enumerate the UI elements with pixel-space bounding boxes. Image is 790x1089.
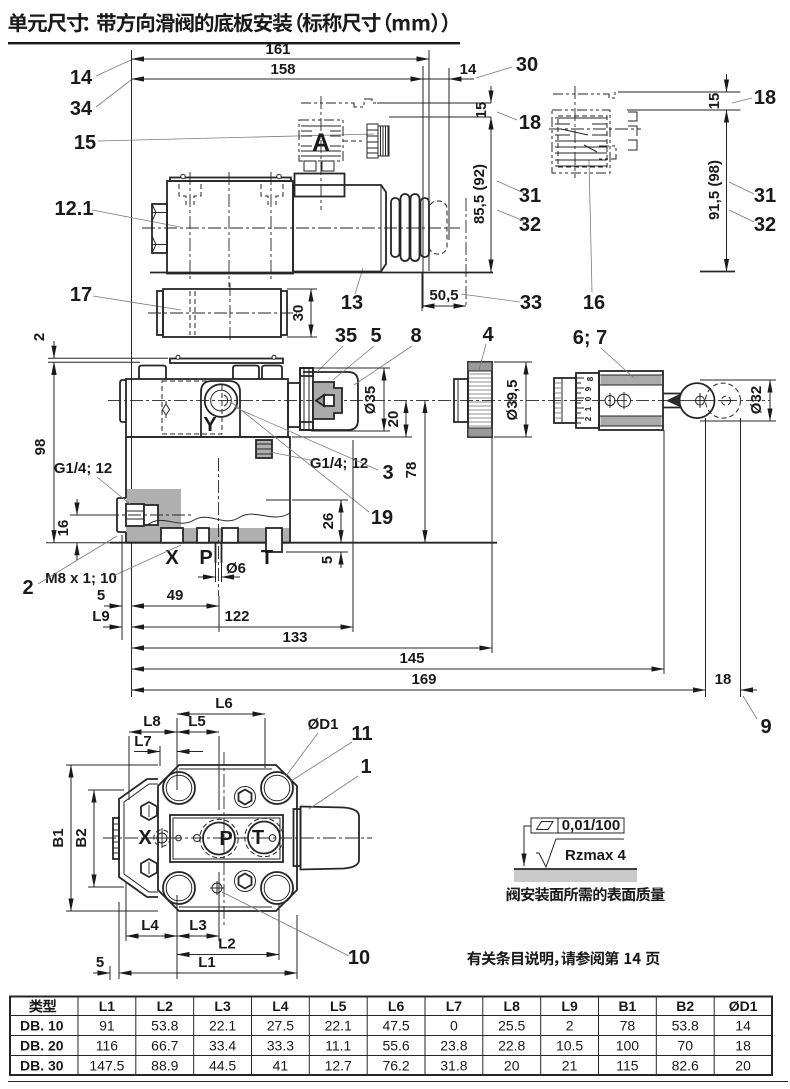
- svg-text:L8: L8: [504, 998, 521, 1014]
- svg-text:145: 145: [399, 650, 424, 667]
- svg-text:M8 x 1; 10: M8 x 1; 10: [45, 570, 117, 587]
- svg-text:18: 18: [519, 112, 541, 134]
- svg-text:L2: L2: [218, 936, 236, 953]
- svg-text:91,5 (98): 91,5 (98): [706, 160, 723, 220]
- svg-text:26: 26: [320, 513, 337, 530]
- svg-text:16: 16: [583, 292, 605, 314]
- svg-text:ØD1: ØD1: [308, 716, 339, 733]
- svg-text:10.5: 10.5: [556, 1038, 583, 1054]
- svg-text:18: 18: [735, 1038, 751, 1054]
- svg-text:31: 31: [519, 185, 541, 207]
- svg-text:11: 11: [351, 723, 372, 745]
- svg-text:34: 34: [70, 98, 93, 120]
- svg-text:18: 18: [715, 671, 732, 688]
- svg-text:G1/4; 12: G1/4; 12: [54, 460, 112, 477]
- svg-text:15: 15: [706, 93, 723, 110]
- svg-text:5: 5: [319, 556, 336, 564]
- svg-text:0: 0: [584, 396, 593, 401]
- svg-text:20: 20: [504, 1058, 520, 1074]
- svg-text:44.5: 44.5: [209, 1058, 236, 1074]
- svg-text:0: 0: [450, 1018, 458, 1034]
- svg-text:82.6: 82.6: [672, 1058, 699, 1074]
- svg-text:L2: L2: [157, 998, 174, 1014]
- svg-text:158: 158: [270, 61, 295, 78]
- svg-text:DB. 10: DB. 10: [20, 1018, 64, 1034]
- svg-text:20: 20: [735, 1058, 751, 1074]
- svg-text:5: 5: [97, 587, 105, 604]
- svg-text:15: 15: [473, 102, 490, 119]
- svg-text:G1/4; 12: G1/4; 12: [310, 455, 368, 472]
- svg-text:L4: L4: [272, 998, 289, 1014]
- svg-text:22.1: 22.1: [209, 1018, 236, 1034]
- svg-text:10: 10: [348, 947, 370, 969]
- svg-text:B1: B1: [50, 828, 67, 847]
- svg-text:116: 116: [96, 1038, 119, 1054]
- svg-text:2: 2: [22, 577, 33, 599]
- svg-text:3: 3: [382, 462, 393, 484]
- svg-text:12.1: 12.1: [55, 198, 94, 220]
- svg-text:Ø35: Ø35: [362, 386, 379, 414]
- svg-text:Y: Y: [203, 414, 217, 436]
- svg-text:53.8: 53.8: [151, 1018, 178, 1034]
- svg-text:122: 122: [224, 608, 249, 625]
- svg-text:B2: B2: [676, 998, 694, 1014]
- svg-text:2: 2: [31, 333, 48, 341]
- svg-text:12.7: 12.7: [325, 1058, 352, 1074]
- svg-text:Rzmax 4: Rzmax 4: [565, 847, 627, 864]
- svg-text:0,01/100: 0,01/100: [562, 817, 620, 834]
- svg-text:T: T: [261, 547, 273, 569]
- svg-text:L3: L3: [189, 917, 207, 934]
- svg-text:L4: L4: [141, 917, 159, 934]
- svg-text:70: 70: [677, 1038, 693, 1054]
- svg-text:L8: L8: [143, 713, 161, 730]
- svg-text:53.8: 53.8: [672, 1018, 699, 1034]
- svg-text:18: 18: [754, 87, 776, 109]
- svg-text:L5: L5: [330, 998, 347, 1014]
- svg-text:14: 14: [70, 67, 93, 89]
- svg-text:Ø32: Ø32: [748, 386, 765, 414]
- svg-text:78: 78: [620, 1018, 636, 1034]
- svg-text:L9: L9: [561, 998, 578, 1014]
- svg-text:78: 78: [403, 462, 420, 479]
- svg-text:Ø6: Ø6: [226, 560, 246, 577]
- svg-text:22.1: 22.1: [325, 1018, 352, 1034]
- svg-text:27.5: 27.5: [267, 1018, 294, 1034]
- svg-text:50,5: 50,5: [429, 287, 458, 304]
- svg-text:30: 30: [516, 54, 538, 76]
- svg-text:91: 91: [99, 1018, 115, 1034]
- svg-text:33.3: 33.3: [267, 1038, 294, 1054]
- svg-text:169: 169: [411, 671, 436, 688]
- svg-text:P: P: [199, 547, 212, 569]
- svg-text:L5: L5: [188, 713, 206, 730]
- svg-text:L7: L7: [446, 998, 463, 1014]
- svg-text:33: 33: [520, 292, 542, 314]
- svg-text:L7: L7: [134, 733, 152, 750]
- svg-text:17: 17: [70, 284, 92, 306]
- svg-text:9: 9: [584, 386, 593, 391]
- svg-text:76.2: 76.2: [382, 1058, 409, 1074]
- svg-text:L6: L6: [388, 998, 405, 1014]
- svg-text:22.8: 22.8: [498, 1038, 525, 1054]
- svg-text:14: 14: [460, 61, 477, 78]
- svg-text:55.6: 55.6: [382, 1038, 409, 1054]
- svg-text:41: 41: [273, 1058, 289, 1074]
- svg-text:32: 32: [754, 214, 776, 236]
- svg-text:8: 8: [586, 376, 595, 381]
- svg-text:L1: L1: [198, 954, 216, 971]
- svg-text:2: 2: [566, 1018, 574, 1034]
- svg-text:115: 115: [616, 1058, 639, 1074]
- svg-text:133: 133: [282, 629, 307, 646]
- svg-text:31.8: 31.8: [440, 1058, 467, 1074]
- svg-text:B1: B1: [618, 998, 636, 1014]
- svg-text:161: 161: [265, 41, 290, 58]
- svg-text:1: 1: [360, 756, 371, 778]
- svg-text:X: X: [138, 827, 152, 849]
- svg-text:98: 98: [32, 439, 49, 456]
- svg-text:ØD1: ØD1: [729, 998, 758, 1014]
- svg-text:5: 5: [370, 325, 381, 347]
- svg-text:13: 13: [341, 292, 363, 314]
- svg-text:85,5 (92): 85,5 (92): [471, 164, 488, 224]
- svg-text:15: 15: [74, 132, 96, 154]
- svg-text:5: 5: [96, 954, 104, 971]
- svg-text:6; 7: 6; 7: [573, 327, 607, 349]
- svg-text:11.1: 11.1: [325, 1038, 351, 1054]
- svg-text:88.9: 88.9: [151, 1058, 178, 1074]
- svg-text:47.5: 47.5: [382, 1018, 409, 1034]
- svg-text:L6: L6: [215, 695, 233, 712]
- svg-text:49: 49: [167, 587, 184, 604]
- svg-text:L1: L1: [99, 998, 116, 1014]
- svg-text:20: 20: [385, 411, 402, 428]
- svg-text:31: 31: [754, 185, 776, 207]
- svg-text:32: 32: [519, 214, 541, 236]
- svg-text:23.8: 23.8: [440, 1038, 467, 1054]
- svg-text:30: 30: [290, 305, 307, 322]
- svg-text:L9: L9: [92, 608, 110, 625]
- svg-text:P: P: [219, 828, 232, 850]
- svg-text:B2: B2: [73, 828, 90, 847]
- svg-text:147.5: 147.5: [89, 1058, 124, 1074]
- svg-text:9: 9: [760, 716, 771, 738]
- svg-text:25.5: 25.5: [498, 1018, 525, 1034]
- svg-text:DB. 20: DB. 20: [20, 1038, 64, 1054]
- svg-text:8: 8: [410, 325, 421, 347]
- svg-text:16: 16: [55, 520, 72, 537]
- svg-text:35: 35: [335, 325, 357, 347]
- svg-text:DB. 30: DB. 30: [20, 1058, 64, 1074]
- svg-text:14: 14: [735, 1018, 751, 1034]
- svg-text:21: 21: [562, 1058, 578, 1074]
- svg-text:Ø39,5: Ø39,5: [504, 380, 521, 421]
- svg-text:L3: L3: [214, 998, 231, 1014]
- svg-text:2: 2: [584, 416, 593, 421]
- svg-text:100: 100: [616, 1038, 640, 1054]
- svg-text:1: 1: [584, 406, 593, 411]
- svg-text:19: 19: [371, 507, 393, 529]
- svg-text:X: X: [165, 547, 179, 569]
- svg-text:33.4: 33.4: [209, 1038, 236, 1054]
- svg-text:4: 4: [482, 324, 494, 346]
- svg-text:66.7: 66.7: [151, 1038, 178, 1054]
- svg-text:T: T: [252, 827, 264, 849]
